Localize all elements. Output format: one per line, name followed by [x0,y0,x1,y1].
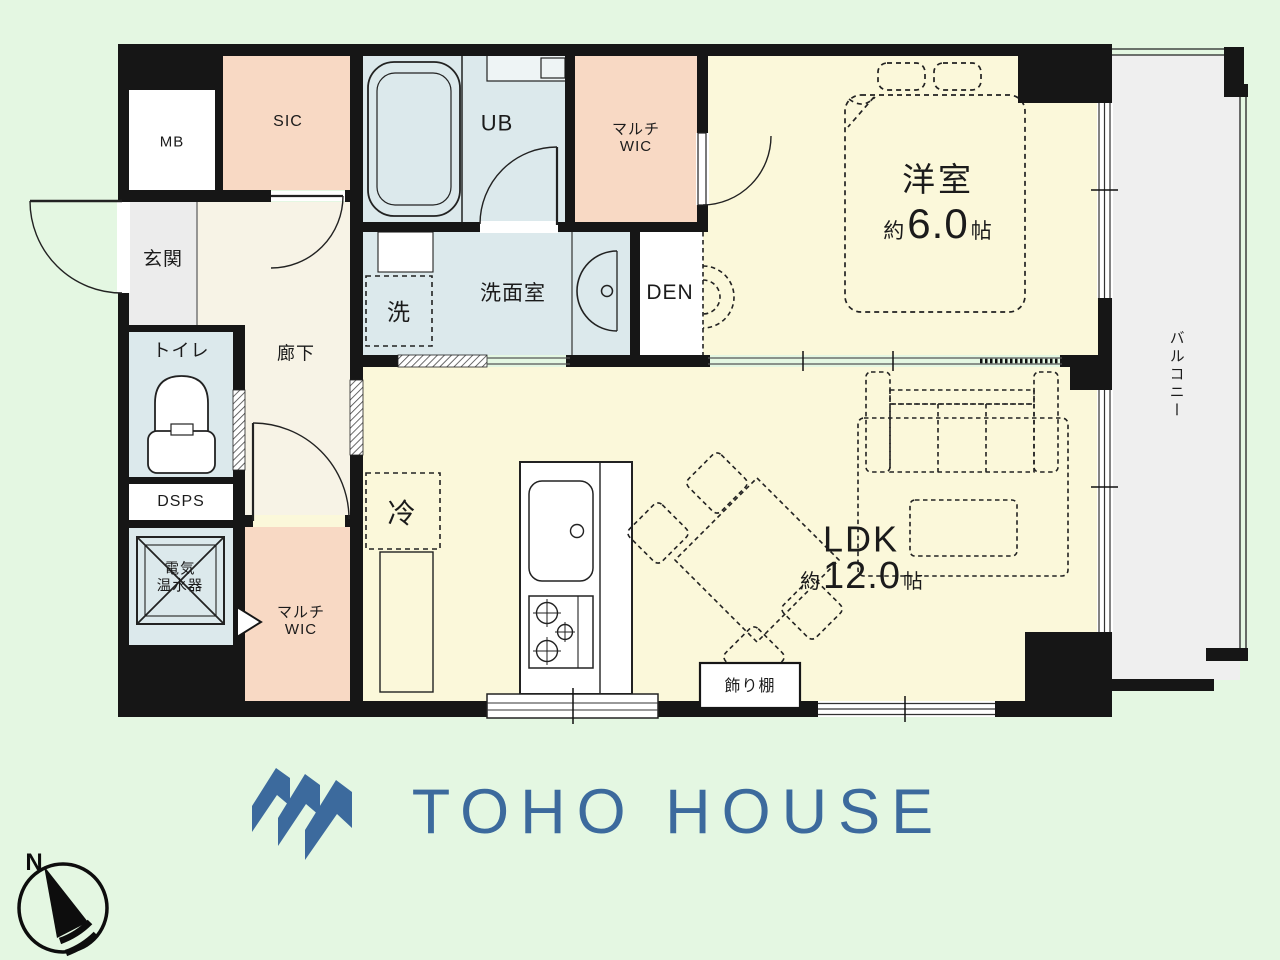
label-refrigerator: 冷 [387,498,416,530]
label-display-shelf: 飾り棚 [724,678,775,696]
label-entrance: 玄関 [143,249,183,271]
company-logo-text: TOHO HOUSE [412,776,944,848]
label-line: WIC [612,138,660,155]
door-arc [30,201,122,293]
room-ldk [363,367,1098,701]
compass-north-label: N [25,849,42,877]
washroom-cabinet [378,232,433,272]
label-sic: SIC [273,113,303,131]
size-value: 12.0 [823,555,901,599]
company-logo-icon [252,768,352,860]
label-water-heater: 電気 温水器 [157,561,204,594]
label-ub: UB [481,110,514,135]
label-ldk-size: 約 12.0 帖 [800,555,924,599]
size-prefix: 約 [883,220,905,244]
label-multi-wic-bottom: マルチ WIC [277,604,325,639]
ldk-hall-door [350,380,363,455]
kitchen-window [487,688,658,724]
toilet-fixture [148,376,215,473]
size-prefix: 約 [800,571,821,594]
toilet-door [233,390,245,470]
floor-plan-page: MB SIC UB マルチ WIC 洋室 約 6.0 帖 DEN 洗面室 洗 玄… [0,0,1280,960]
bath-counter [487,55,568,81]
label-washer: 洗 [387,299,411,325]
label-hallway: 廊下 [277,344,315,365]
label-line: WIC [277,621,325,638]
label-balcony: バルコニー [1167,330,1184,420]
label-line: マルチ [277,604,325,621]
label-dsps: DSPS [157,493,205,511]
label-line: 温水器 [157,578,204,595]
label-ldk: LDK [823,518,899,559]
label-den: DEN [646,281,693,305]
label-toilet: トイレ [153,341,210,362]
label-line: マルチ [612,121,660,138]
label-western-room: 洋室 [902,161,974,199]
label-western-room-size: 約 6.0 帖 [883,200,992,248]
size-unit: 帖 [971,220,993,244]
size-value: 6.0 [907,200,968,248]
label-mb: MB [160,133,185,150]
label-washroom: 洗面室 [480,282,546,306]
label-multi-wic-top: マルチ WIC [612,121,660,156]
size-unit: 帖 [903,571,924,594]
label-line: 電気 [157,561,204,578]
kitchen-counter [520,462,632,694]
washroom-door [398,355,487,367]
compass [19,864,107,953]
